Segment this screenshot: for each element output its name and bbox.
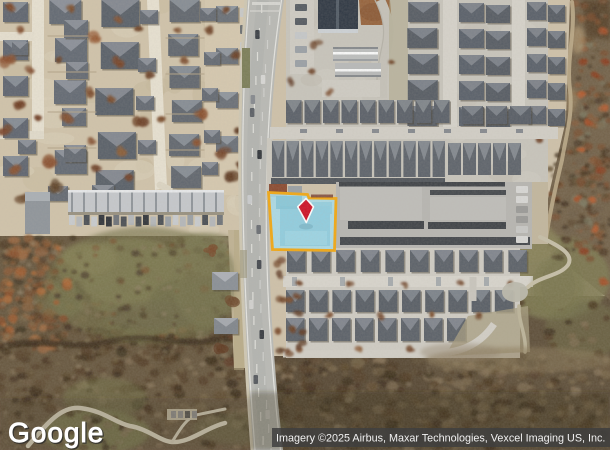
- svg-text:Imagery ©2025 Airbus, Maxar Te: Imagery ©2025 Airbus, Maxar Technologies…: [276, 433, 605, 445]
- svg-text:Google: Google: [8, 417, 104, 448]
